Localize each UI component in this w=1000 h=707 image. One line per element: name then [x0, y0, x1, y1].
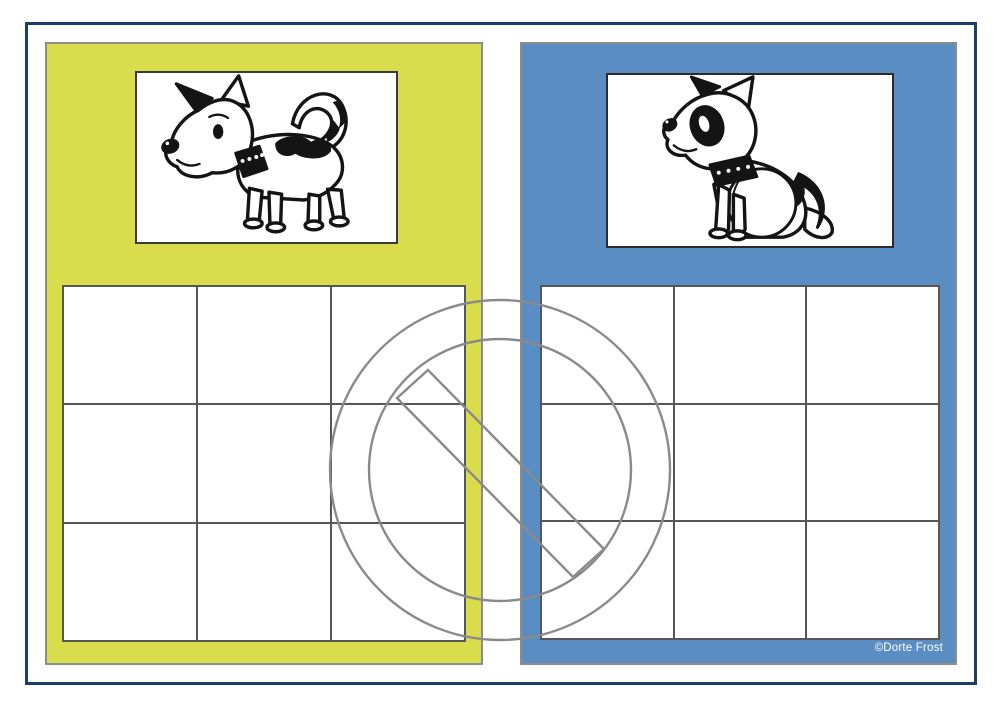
right-sorting-grid [540, 285, 940, 640]
grid-cell[interactable] [807, 405, 938, 521]
sitting-dog-icon [608, 75, 892, 246]
grid-cell[interactable] [64, 287, 196, 403]
grid-cell[interactable] [198, 287, 330, 403]
grid-cell[interactable] [675, 522, 806, 638]
grid-cell[interactable] [542, 287, 673, 403]
grid-cell[interactable] [807, 287, 938, 403]
grid-cell[interactable] [675, 405, 806, 521]
grid-cell[interactable] [675, 287, 806, 403]
right-reference-card [606, 73, 894, 248]
grid-cell[interactable] [64, 524, 196, 640]
copyright-text: ©Dorte Frost [875, 641, 943, 655]
grid-cell[interactable] [332, 405, 464, 521]
grid-cell[interactable] [542, 405, 673, 521]
grid-cell[interactable] [64, 405, 196, 521]
grid-cell[interactable] [332, 287, 464, 403]
grid-cell[interactable] [198, 405, 330, 521]
printable-page: ©Dorte Frost [0, 0, 1000, 707]
grid-cell[interactable] [542, 522, 673, 638]
grid-cell[interactable] [807, 522, 938, 638]
grid-cell[interactable] [332, 524, 464, 640]
left-reference-card [135, 71, 398, 244]
left-sorting-grid [62, 285, 466, 642]
grid-cell[interactable] [198, 524, 330, 640]
standing-dog-icon [137, 73, 396, 242]
